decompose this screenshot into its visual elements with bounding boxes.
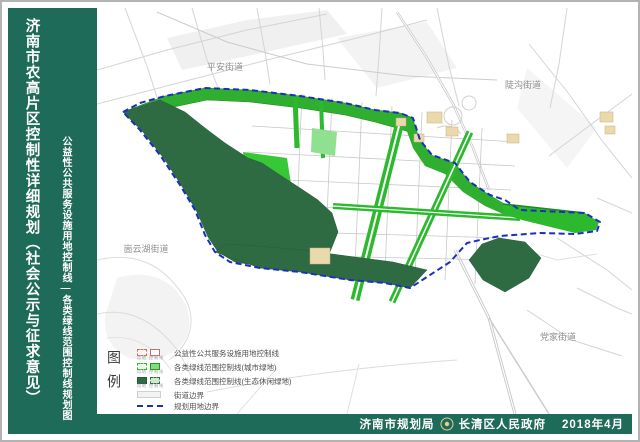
legend-item-street-boundary: 街道边界: [137, 391, 292, 401]
district-government-name: 长清区人民政府: [459, 416, 547, 432]
legend-items: 用地 控制线 公益性公共服务设施用地控制线 用地 控制线 各类绿线范围控制线(城…: [137, 349, 292, 412]
planning-boundary-swatch: [137, 402, 167, 407]
eco-green-swatch: 用地 控制线: [137, 377, 167, 389]
street-boundary-swatch: [137, 391, 167, 398]
legend-item-eco-green: 用地 控制线 各类绿线范围控制线(生态休闲绿地): [137, 377, 292, 389]
plan-sheet-subtitle: 公益性公共服务设施用地控制线—各类绿线范围控制线规划图: [60, 136, 70, 428]
government-seal-icon: [440, 417, 454, 431]
legend-item-public-facility: 用地 控制线 公益性公共服务设施用地控制线: [137, 349, 292, 361]
legend-item-urban-green: 用地 控制线 各类绿线范围控制线(城市绿地): [137, 363, 292, 375]
title-sidebar: 济南市农高片区控制性详细规划（社会公示与征求意见） 公益性公共服务设施用地控制线…: [8, 8, 97, 434]
legend-item-planning-boundary: 规划用地边界: [137, 402, 292, 412]
plan-main-title: 济南市农高片区控制性详细规划（社会公示与征求意见）: [24, 18, 39, 430]
street-label-dangjia: 党家街道: [540, 331, 576, 342]
street-label-pingan: 平安街道: [207, 61, 243, 72]
publication-date: 2018年4月: [562, 416, 624, 432]
planning-bureau-name: 济南市规划局: [360, 416, 435, 432]
urban-green-swatch: 用地 控制线: [137, 363, 167, 375]
street-label-dougou: 陡沟街道: [505, 79, 541, 90]
street-label-guyunhu: 崮云湖街道: [123, 243, 168, 254]
planning-map: 平安街道 陡沟街道 崮云湖街道 党家街道 图例 用地 控制线 公益性公共服务设施…: [97, 8, 632, 414]
map-panel: 平安街道 陡沟街道 崮云湖街道 党家街道 图例 用地 控制线 公益性公共服务设施…: [97, 8, 632, 434]
public-facility-swatch: 用地 控制线: [137, 349, 167, 361]
legend-title: 图例: [107, 350, 121, 412]
footer-bar: 济南市规划局 长清区人民政府 2018年4月: [97, 414, 632, 434]
legend: 图例 用地 控制线 公益性公共服务设施用地控制线 用地 控制线: [107, 349, 292, 412]
page-frame: 济南市农高片区控制性详细规划（社会公示与征求意见） 公益性公共服务设施用地控制线…: [0, 0, 640, 442]
